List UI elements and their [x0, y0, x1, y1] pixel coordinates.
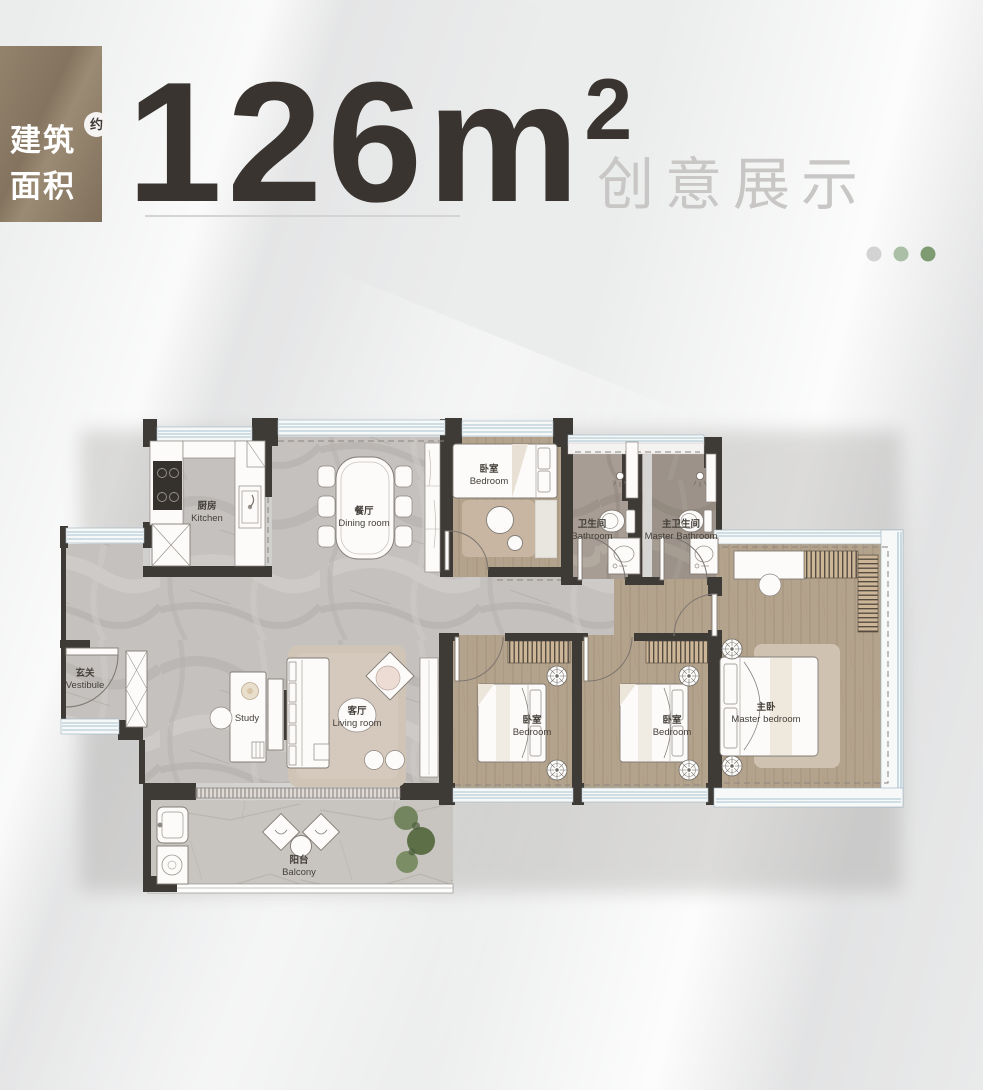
master-stool — [759, 574, 781, 596]
bedroom-top-label-zh: 卧室 — [479, 463, 499, 475]
bedroom-top-table — [487, 507, 514, 534]
balcony-threshold — [196, 788, 400, 798]
bedroom-left-label-zh: 卧室 — [522, 714, 542, 726]
balcony-label-zh: 阳台 — [289, 854, 309, 866]
master-bedroom-label-zh: 主卧 — [756, 701, 776, 713]
shower-head-icon — [616, 472, 623, 479]
master-wardrobe-side — [858, 555, 878, 632]
vestibule-label-zh: 玄关 — [75, 667, 95, 679]
bedroom-right-window — [582, 788, 708, 802]
vestibule-label-en: Vestibule — [66, 680, 105, 691]
dining-label-en: Dining room — [338, 518, 389, 529]
bedroom-top-furniture — [453, 444, 557, 558]
study-books — [252, 742, 264, 758]
tv — [284, 690, 287, 740]
kitchen-window — [157, 427, 252, 441]
master-bathroom-label-en: Master Bathroom — [645, 531, 718, 542]
bathroom-label-zh: 卫生间 — [578, 518, 607, 530]
corridor-floor — [440, 577, 614, 635]
bedroom-right-label-en: Bedroom — [653, 727, 692, 738]
master-bedroom-label-en: Master bedroom — [731, 714, 800, 725]
bathroom-label-en: Bathroom — [571, 531, 612, 542]
kitchen-label-en: Kitchen — [191, 513, 223, 524]
master-wardrobe-top — [804, 551, 858, 578]
bedroom-left-wardrobe — [508, 641, 570, 663]
bedroom-top-window — [462, 421, 553, 436]
bedroom-left-label-en: Bedroom — [513, 727, 552, 738]
bedroom-right-label-zh: 卧室 — [662, 714, 682, 726]
sofa-cushions — [289, 662, 296, 765]
kitchen-label-zh: 厨房 — [197, 500, 216, 512]
balcony-label-en: Balcony — [282, 867, 316, 878]
bedroom-top-label-en: Bedroom — [470, 476, 509, 487]
living-label-zh: 客厅 — [346, 705, 367, 717]
bedroom-top-bench — [535, 500, 557, 558]
living-label-en: Living room — [332, 718, 381, 729]
shoe-cabinet — [126, 651, 147, 727]
stove — [153, 461, 182, 510]
master-shower-head-icon — [696, 472, 703, 479]
kitchen-floor — [183, 458, 235, 566]
shower-column — [626, 442, 638, 498]
vestibule-furniture — [126, 651, 147, 727]
dining-side-cabinet — [425, 443, 440, 572]
armchair-cushion — [376, 666, 400, 690]
master-bathroom-sink — [690, 538, 718, 574]
balcony-table — [291, 836, 312, 857]
study-label: Study — [235, 713, 260, 724]
poster-page: 建筑面积 约 126m2 创意展示 — [0, 0, 983, 1090]
corridor-wood-floor — [614, 579, 716, 635]
tv-console — [268, 679, 283, 750]
vestibule-window — [61, 719, 119, 734]
bedroom-right-wardrobe — [646, 641, 708, 663]
balcony-rail — [148, 884, 453, 893]
study-chair — [210, 707, 232, 729]
sofa-side-table — [314, 744, 329, 760]
floorplan: 厨房 Kitchen 餐厅 Dining room 卧室 Bedroom 卫生间… — [0, 0, 983, 1090]
ottoman — [365, 751, 384, 770]
master-shower-column — [706, 454, 716, 502]
dining-window — [278, 420, 445, 435]
dining-label-zh: 餐厅 — [353, 505, 374, 517]
bedroom-top-stool — [508, 536, 523, 551]
master-bathroom-label-zh: 主卫生间 — [662, 518, 700, 530]
bedroom-left-window — [453, 788, 573, 802]
hall-west-window — [66, 528, 144, 543]
ottoman — [386, 751, 405, 770]
